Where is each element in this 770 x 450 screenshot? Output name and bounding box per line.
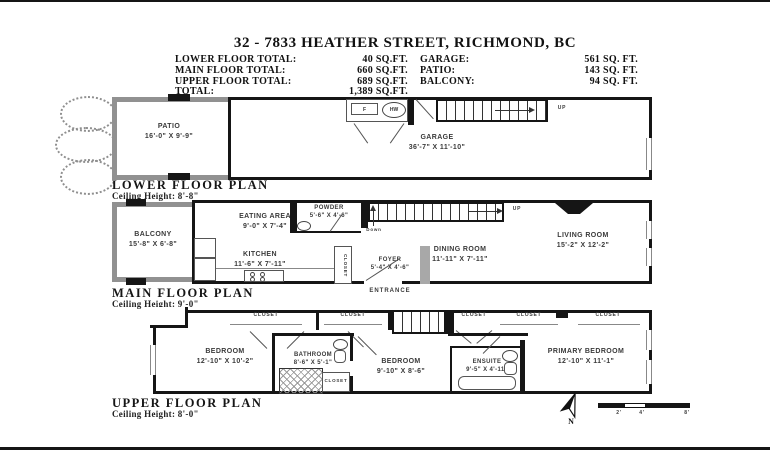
- room-powder: POWDER 5'-6" X 4'-6": [298, 204, 360, 221]
- room-balcony: BALCONY 15'-8" X 6'-8": [116, 230, 190, 250]
- wall-notch: [150, 307, 188, 328]
- room-dims: 12'-10" X 10'-2": [165, 357, 285, 367]
- room-dims: 15'-2" X 12'-2": [525, 241, 641, 251]
- floor-plan-sheet: 32 - 7833 HEATHER STREET, RICHMOND, BC L…: [0, 0, 770, 450]
- stair-down-label: Down: [361, 227, 387, 232]
- closet-rod-line: [324, 324, 382, 325]
- shrub-icon: [60, 159, 116, 195]
- closet-rod-line: [500, 324, 558, 325]
- garage-area-label: GARAGE:: [420, 54, 525, 65]
- fridge-icon: [194, 238, 216, 258]
- room-dims: 16'-0" X 9'-9": [116, 132, 222, 142]
- room-name: PATIO: [116, 122, 222, 132]
- main-total-value: 660 SQ.FT.: [343, 65, 408, 76]
- window-mark: [646, 248, 652, 266]
- frame-top-line: [0, 0, 770, 2]
- totals-row-lower: LOWER FLOOR TOTAL: 40 SQ.FT. GARAGE: 561…: [175, 54, 638, 65]
- window-mark: [646, 138, 652, 170]
- shrub-icon: [55, 127, 117, 163]
- counter-line: [216, 268, 334, 269]
- stair-up-label: UP: [508, 206, 526, 212]
- wall-segment: [272, 333, 354, 336]
- upper-ceiling-height: Ceiling Height: 8'-0": [112, 409, 199, 419]
- window-mark: [646, 360, 652, 384]
- arrow-icon: [497, 208, 503, 214]
- arrow-icon: [370, 205, 376, 211]
- room-dims: 11'-11" X 7'-11": [402, 255, 518, 265]
- closet-rod-line: [578, 324, 640, 325]
- window-mark: [150, 345, 156, 375]
- stair-direction-line: [468, 211, 498, 212]
- toilet-icon: [504, 362, 517, 375]
- room-garage: GARAGE 36'-7" X 11'-10": [377, 133, 497, 153]
- sink-icon: [297, 221, 311, 231]
- entrance-label: ENTRANCE: [352, 287, 428, 295]
- garage-area-value: 561 SQ. FT.: [525, 54, 638, 65]
- window-mark: [646, 221, 652, 239]
- wall-segment: [126, 199, 146, 206]
- room-patio: PATIO 16'-0" X 9'-9": [116, 122, 222, 142]
- room-name: POWDER: [298, 204, 360, 212]
- wall-segment: [448, 333, 528, 336]
- room-dims: 5'-4" X 4'-6": [358, 264, 422, 272]
- wall-segment: [126, 278, 146, 285]
- room-dims: 9'-10" X 8'-6": [348, 367, 454, 377]
- wall-segment: [361, 200, 368, 228]
- stairs-main: [368, 202, 504, 222]
- patio-area-label: PATIO:: [420, 65, 525, 76]
- closet-label: CLOSET: [572, 312, 644, 318]
- totals-row-main: MAIN FLOOR TOTAL: 660 SQ.FT. PATIO: 143 …: [175, 65, 638, 76]
- wall-segment: [290, 200, 296, 233]
- stair-up-label: UP: [552, 105, 572, 111]
- room-name: KITCHEN: [212, 250, 308, 260]
- room-dining: DINING ROOM 11'-11" X 7'-11": [402, 245, 518, 265]
- entrance-opening: [364, 281, 402, 285]
- closet-label: CLOSET: [320, 312, 386, 318]
- grand-total-label: TOTAL:: [175, 86, 343, 97]
- toilet-icon: [334, 350, 346, 363]
- wall-segment: [272, 333, 275, 394]
- room-bedroom-1: BEDROOM 12'-10" X 10'-2": [165, 347, 285, 367]
- scale-bar-segment: [646, 403, 690, 408]
- bathtub-icon: [458, 376, 516, 390]
- room-name: BEDROOM: [165, 347, 285, 357]
- room-kitchen: KITCHEN 11'-6" X 7'-11": [212, 250, 308, 270]
- closet-label: CLOSET: [450, 312, 498, 318]
- hot-water-tank: HW: [382, 102, 406, 118]
- north-label: N: [561, 417, 581, 426]
- wall-segment: [408, 97, 414, 125]
- closet-rod-line: [230, 324, 302, 325]
- room-dims: 15'-8" X 6'-8": [116, 240, 190, 250]
- room-name: GARAGE: [377, 133, 497, 143]
- scale-tick-label: 2': [612, 410, 626, 416]
- room-bedroom-2: BEDROOM 9'-10" X 8'-6": [348, 357, 454, 377]
- stair-direction-line: [373, 211, 374, 226]
- grand-total-value: 1,389 SQ.FT.: [343, 86, 408, 97]
- room-living: LIVING ROOM 15'-2" X 12'-2": [525, 231, 641, 251]
- page-title: 32 - 7833 HEATHER STREET, RICHMOND, BC: [170, 35, 640, 52]
- bathtub-icon: [279, 368, 323, 394]
- closet-label: CLOSET: [494, 312, 564, 318]
- room-name: BALCONY: [116, 230, 190, 240]
- wall-segment: [556, 310, 568, 318]
- main-total-label: MAIN FLOOR TOTAL:: [175, 65, 343, 76]
- patio-area-value: 143 SQ. FT.: [525, 65, 638, 76]
- wall-segment: [450, 346, 522, 348]
- arrow-icon: [529, 107, 535, 113]
- closet-label: CLOSET: [338, 250, 348, 282]
- burner-icon: [250, 277, 255, 282]
- kitchen-sink-icon: [194, 258, 216, 281]
- stair-direction-line: [495, 110, 529, 111]
- totals-row-grand: TOTAL: 1,389 SQ.FT.: [175, 86, 638, 97]
- room-name: DINING ROOM: [402, 245, 518, 255]
- room-primary-bedroom: PRIMARY BEDROOM 12'-10" X 11'-1": [525, 347, 647, 367]
- room-dims: 12'-10" X 11'-1": [525, 357, 647, 367]
- stairs-upper: [392, 310, 446, 334]
- wall-segment: [316, 310, 319, 330]
- spacer: [408, 65, 420, 76]
- scale-tick-label: 4': [635, 410, 649, 416]
- lower-total-label: LOWER FLOOR TOTAL:: [175, 54, 343, 65]
- closet-label: CLOSET: [320, 378, 352, 383]
- scale-bar-segment: [598, 403, 624, 408]
- room-dims: 36'-7" X 11'-10": [377, 143, 497, 153]
- sink-icon: [333, 339, 348, 350]
- spacer: [408, 54, 420, 65]
- window-mark: [646, 330, 652, 350]
- closet-label: CLOSET: [226, 312, 306, 318]
- scale-tick-label: 8': [680, 410, 694, 416]
- room-name: BEDROOM: [348, 357, 454, 367]
- room-dims: 5'-6" X 4'-6": [298, 212, 360, 220]
- scale-bar-segment: [624, 403, 646, 408]
- wall-segment: [168, 94, 190, 101]
- room-name: PRIMARY BEDROOM: [525, 347, 647, 357]
- sink-icon: [502, 350, 518, 362]
- furnace-box: F: [351, 103, 378, 115]
- lower-total-value: 40 SQ.FT.: [343, 54, 408, 65]
- room-name: LIVING ROOM: [525, 231, 641, 241]
- burner-icon: [260, 277, 265, 282]
